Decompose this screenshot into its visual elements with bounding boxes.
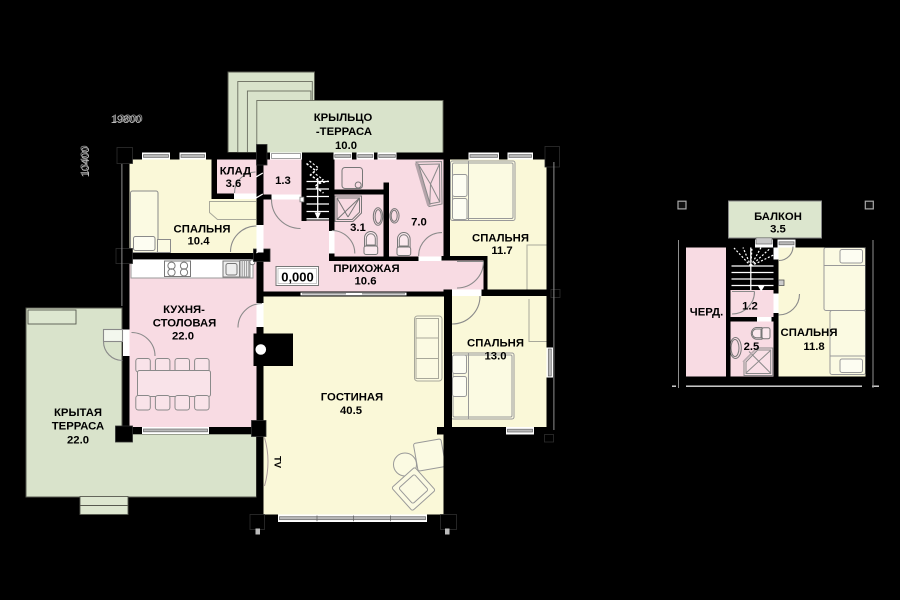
svg-text:TV: TV	[272, 456, 283, 469]
svg-text:СПАЛЬНЯ: СПАЛЬНЯ	[472, 233, 529, 245]
svg-text:3.6: 3.6	[226, 178, 242, 190]
svg-text:0,000: 0,000	[281, 270, 314, 285]
svg-text:ТЕРРАСА: ТЕРРАСА	[52, 421, 104, 433]
svg-text:10.4: 10.4	[188, 236, 211, 248]
svg-text:40.5: 40.5	[340, 405, 362, 417]
svg-text:13.0: 13.0	[485, 351, 507, 363]
svg-text:КЛАД: КЛАД	[220, 166, 251, 178]
svg-text:1.2: 1.2	[742, 301, 758, 313]
svg-text:10.0: 10.0	[335, 140, 357, 152]
svg-text:3.5: 3.5	[770, 224, 786, 236]
svg-text:1.3: 1.3	[275, 175, 291, 187]
svg-text:10.6: 10.6	[355, 276, 377, 288]
svg-text:3.1: 3.1	[350, 222, 366, 234]
svg-text:22.0: 22.0	[172, 331, 194, 343]
svg-text:13400: 13400	[79, 145, 91, 176]
svg-text:ЧЕРД.: ЧЕРД.	[690, 307, 723, 319]
svg-text:КУХНЯ-: КУХНЯ-	[163, 304, 205, 316]
svg-text:11.7: 11.7	[491, 245, 512, 257]
svg-text:КРЫЛЬЦО: КРЫЛЬЦО	[314, 112, 373, 124]
svg-text:СПАЛЬНЯ: СПАЛЬНЯ	[174, 224, 231, 236]
svg-text:СПАЛЬНЯ: СПАЛЬНЯ	[467, 338, 524, 350]
svg-text:ПРИХОЖАЯ: ПРИХОЖАЯ	[333, 263, 399, 275]
svg-text:7.0: 7.0	[411, 217, 427, 229]
svg-text:СТОЛОВАЯ: СТОЛОВАЯ	[153, 318, 217, 330]
svg-text:11.8: 11.8	[803, 341, 824, 353]
svg-text:ГОСТИНАЯ: ГОСТИНАЯ	[321, 392, 383, 404]
svg-text:БАЛКОН: БАЛКОН	[754, 211, 802, 223]
svg-text:СПАЛЬНЯ: СПАЛЬНЯ	[781, 327, 838, 339]
svg-text:-ТЕРРАСА: -ТЕРРАСА	[316, 126, 372, 138]
svg-text:2.5: 2.5	[744, 341, 760, 353]
svg-text:13800: 13800	[112, 113, 143, 125]
svg-text:КРЫТАЯ: КРЫТАЯ	[54, 407, 102, 419]
svg-text:22.0: 22.0	[67, 435, 89, 447]
